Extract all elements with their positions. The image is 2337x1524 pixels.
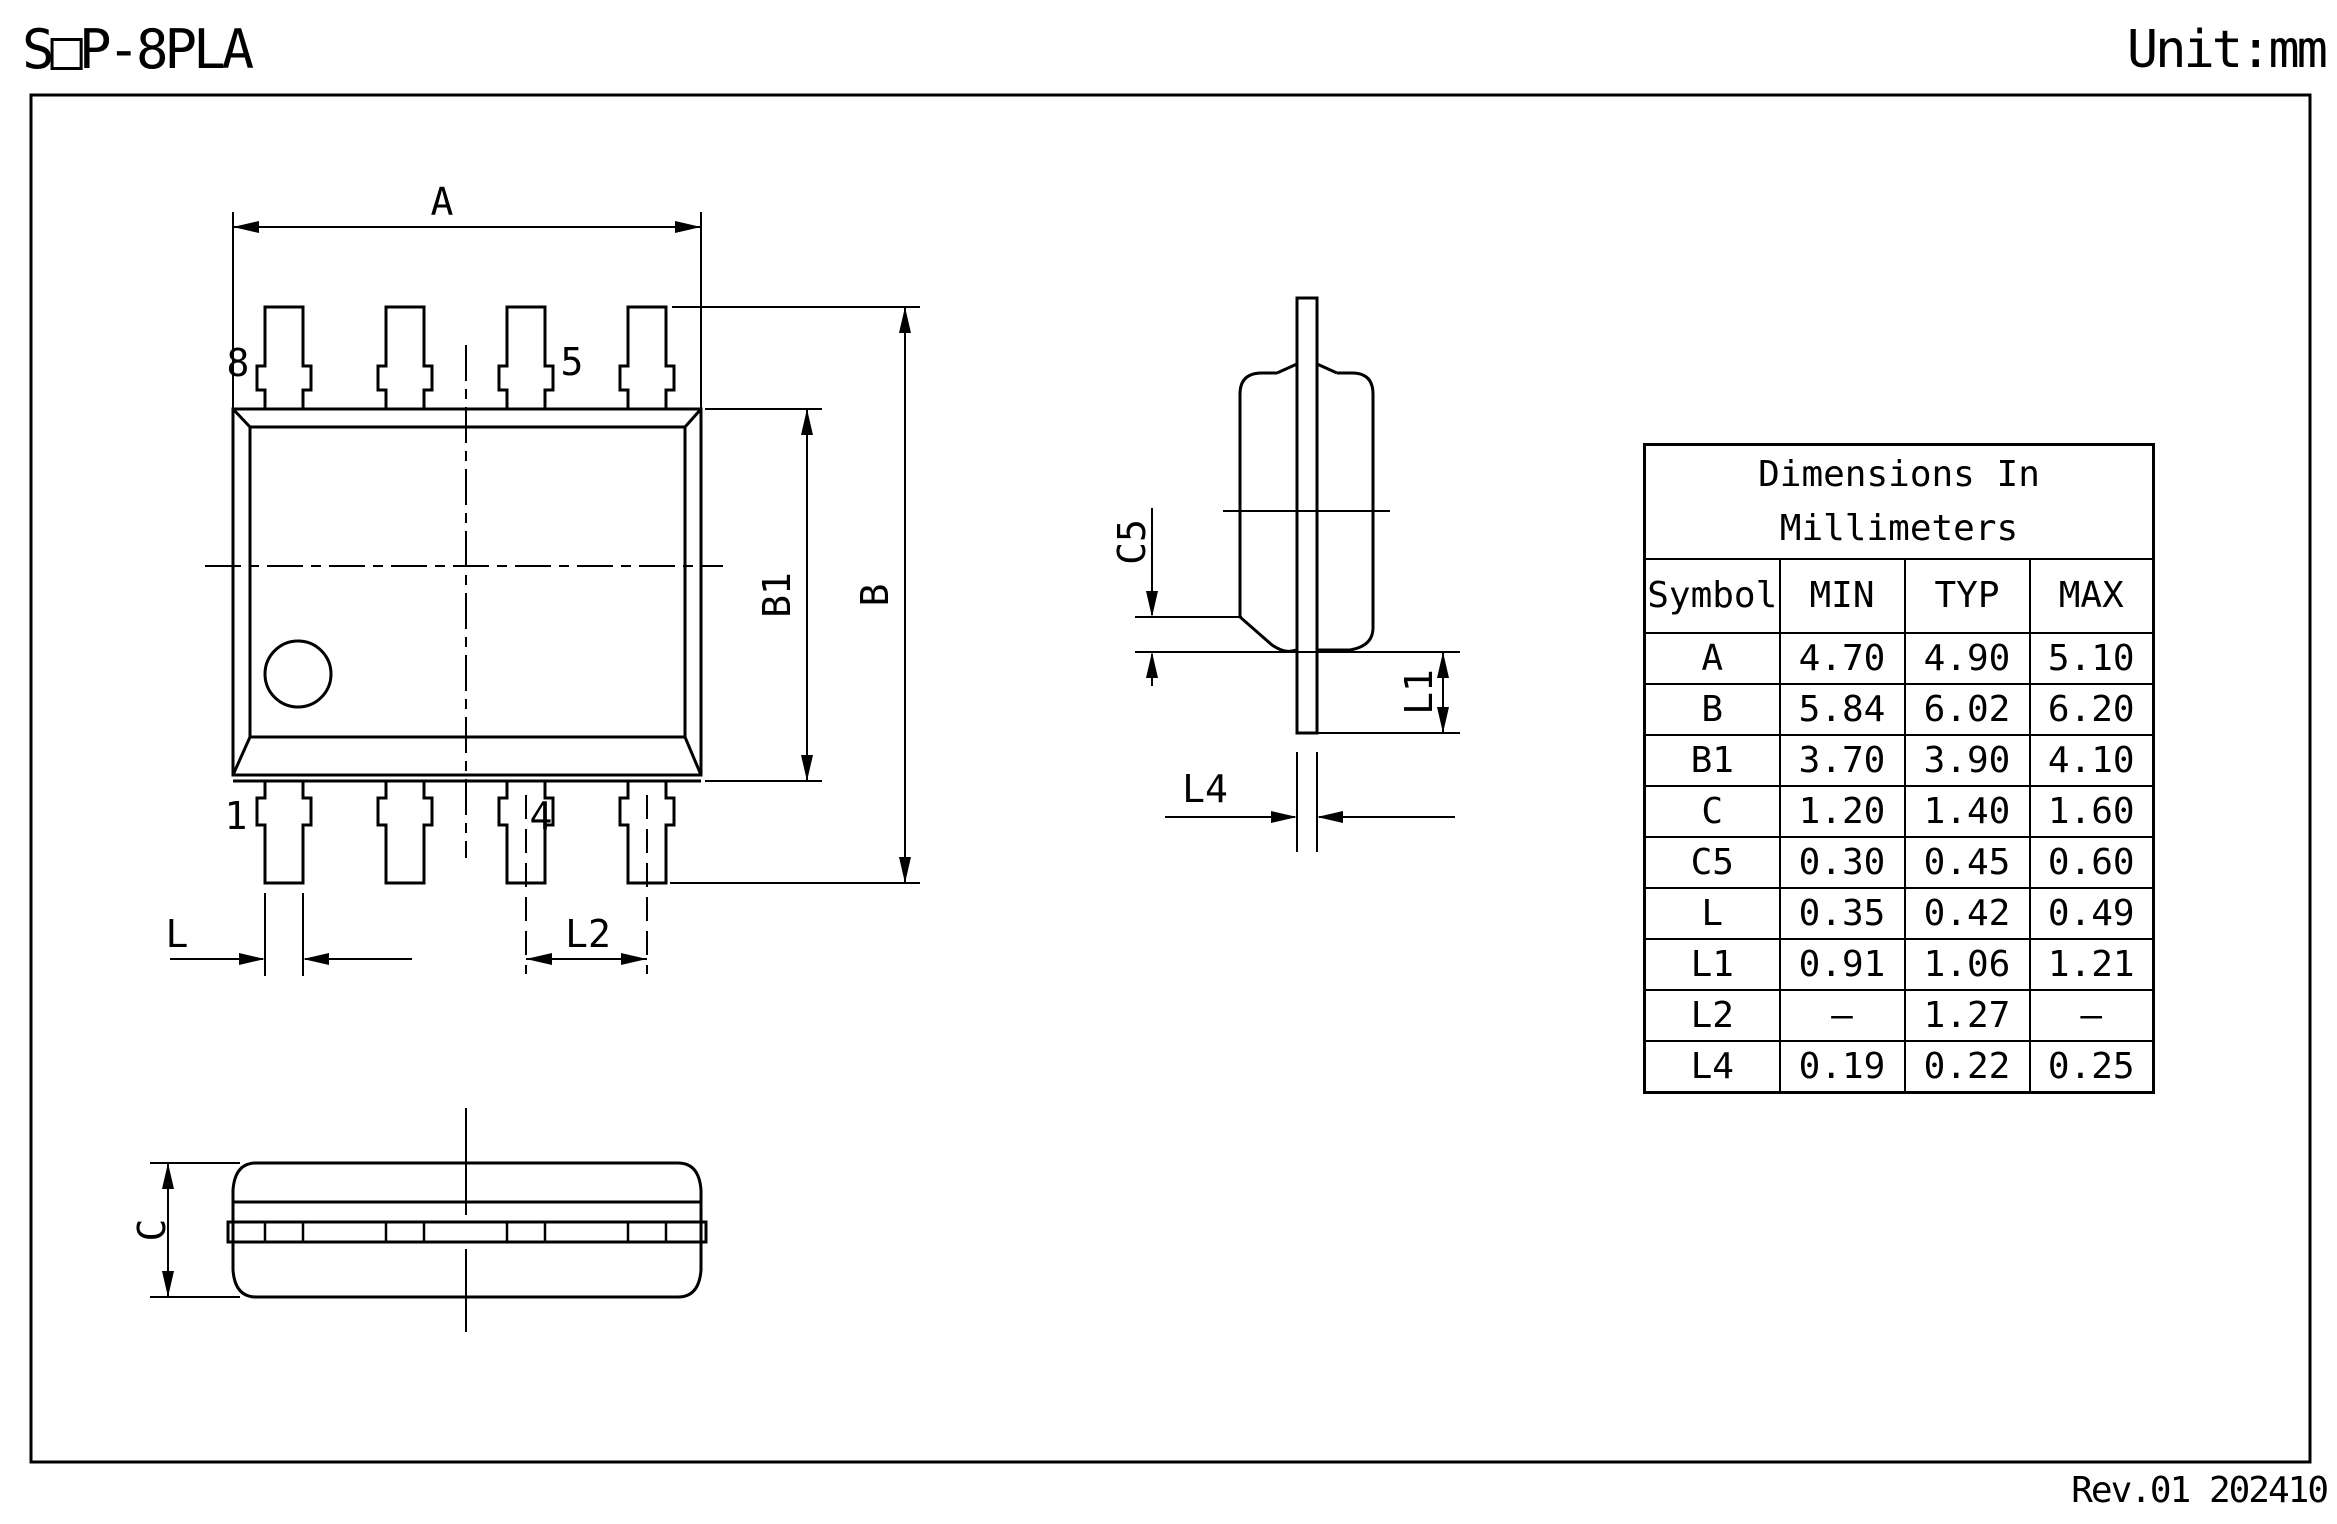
- cell-min: 3.70: [1780, 735, 1905, 786]
- pin-6: [499, 307, 553, 409]
- cell-min: 0.30: [1780, 837, 1905, 888]
- table-row: A 4.70 4.90 5.10: [1645, 633, 2154, 684]
- arrowhead: [675, 221, 701, 233]
- side-body-top-slope-left: [1277, 364, 1297, 373]
- body-chamfer-tl: [233, 409, 250, 427]
- col-header-symbol: Symbol: [1645, 559, 1780, 633]
- cell-max: 0.60: [2030, 837, 2154, 888]
- cell-typ: 4.90: [1905, 633, 2030, 684]
- pin-7: [378, 307, 432, 409]
- dim-label-b1: B1: [755, 572, 799, 618]
- cell-symbol: C5: [1645, 837, 1780, 888]
- arrowhead: [1146, 591, 1158, 617]
- unit-label: Unit:mm: [2127, 20, 2325, 80]
- dimension-arrowheads: [162, 221, 1449, 1297]
- pin-label-5: 5: [561, 340, 584, 384]
- cell-max: –: [2030, 990, 2154, 1041]
- pin-5: [620, 307, 674, 409]
- side-body-top-slope-right: [1317, 364, 1337, 373]
- cell-typ: 0.42: [1905, 888, 2030, 939]
- dim-label-a: A: [431, 180, 454, 224]
- cell-typ: 0.45: [1905, 837, 2030, 888]
- arrowhead: [1146, 652, 1158, 678]
- front-lead-band-dividers: [233, 1222, 701, 1242]
- pin-label-8: 8: [227, 341, 250, 385]
- datasheet-page: A B1 B L L2 C5 L1 L4 C 8 5 1 4 S□P-8PLA …: [0, 0, 2337, 1524]
- dim-label-c: C: [130, 1219, 174, 1242]
- front-lead-band: [228, 1222, 706, 1242]
- pin-8: [257, 307, 311, 409]
- body-chamfer-tr: [685, 409, 701, 427]
- col-header-max: MAX: [2030, 559, 2154, 633]
- cell-max: 0.25: [2030, 1041, 2154, 1093]
- table-row: C 1.20 1.40 1.60: [1645, 786, 2154, 837]
- arrowhead: [1317, 811, 1343, 823]
- cell-min: 0.19: [1780, 1041, 1905, 1093]
- cell-max: 5.10: [2030, 633, 2154, 684]
- arrowhead: [899, 307, 911, 333]
- table-row: L2 – 1.27 –: [1645, 990, 2154, 1041]
- dim-label-l2: L2: [565, 912, 611, 956]
- col-header-min: MIN: [1780, 559, 1905, 633]
- cell-min: 0.91: [1780, 939, 1905, 990]
- revision-label: Rev.01 202410: [2071, 1470, 2327, 1511]
- dim-label-l: L: [166, 912, 189, 956]
- cell-max: 4.10: [2030, 735, 2154, 786]
- pin-label-1: 1: [225, 794, 248, 838]
- dim-label-b: B: [853, 584, 897, 607]
- cell-min: 1.20: [1780, 786, 1905, 837]
- cell-max: 0.49: [2030, 888, 2154, 939]
- cell-symbol: L4: [1645, 1041, 1780, 1093]
- table-row: C5 0.30 0.45 0.60: [1645, 837, 2154, 888]
- arrowhead: [239, 953, 265, 965]
- dim-label-l1: L1: [1397, 669, 1441, 715]
- pin1-indicator-dot: [265, 641, 331, 707]
- dim-label-c5: C5: [1110, 519, 1154, 565]
- arrowhead: [621, 953, 647, 965]
- cell-max: 6.20: [2030, 684, 2154, 735]
- table-row: B1 3.70 3.90 4.10: [1645, 735, 2154, 786]
- cell-min: 5.84: [1780, 684, 1905, 735]
- arrowhead: [526, 953, 552, 965]
- table-title: Dimensions In Millimeters: [1645, 445, 2154, 560]
- table-row: L4 0.19 0.22 0.25: [1645, 1041, 2154, 1093]
- arrowhead: [303, 953, 329, 965]
- table-title-line1: Dimensions In: [1646, 448, 2152, 502]
- table-row: L1 0.91 1.06 1.21: [1645, 939, 2154, 990]
- cell-min: 4.70: [1780, 633, 1905, 684]
- arrowhead: [162, 1163, 174, 1189]
- drawing-labels: A B1 B L L2 C5 L1 L4 C 8 5 1 4: [130, 180, 1441, 1241]
- cell-symbol: A: [1645, 633, 1780, 684]
- cell-typ: 0.22: [1905, 1041, 2030, 1093]
- cell-symbol: B: [1645, 684, 1780, 735]
- pin-label-4: 4: [530, 794, 553, 838]
- side-view: [1240, 298, 1373, 733]
- cell-typ: 1.27: [1905, 990, 2030, 1041]
- cell-typ: 1.40: [1905, 786, 2030, 837]
- cell-typ: 3.90: [1905, 735, 2030, 786]
- cell-min: 0.35: [1780, 888, 1905, 939]
- arrowhead: [1271, 811, 1297, 823]
- dimensions-table: Dimensions In Millimeters Symbol MIN TYP…: [1643, 443, 2155, 1094]
- pin-2: [378, 781, 432, 883]
- lead-profile: [1297, 298, 1317, 733]
- cell-min: –: [1780, 990, 1905, 1041]
- cell-symbol: C: [1645, 786, 1780, 837]
- side-body-left: [1240, 373, 1297, 651]
- table-row: L 0.35 0.42 0.49: [1645, 888, 2154, 939]
- body-top-surface-outline: [250, 427, 685, 737]
- cell-symbol: L1: [1645, 939, 1780, 990]
- pin-1: [257, 781, 311, 883]
- arrowhead: [162, 1271, 174, 1297]
- cell-symbol: L2: [1645, 990, 1780, 1041]
- arrowhead: [801, 755, 813, 781]
- cell-typ: 1.06: [1905, 939, 2030, 990]
- table-row: B 5.84 6.02 6.20: [1645, 684, 2154, 735]
- body-chamfer-bl: [233, 737, 250, 775]
- table-title-line2: Millimeters: [1646, 502, 2152, 556]
- dim-label-l4: L4: [1182, 767, 1228, 811]
- table-header-row: Symbol MIN TYP MAX: [1645, 559, 2154, 633]
- cell-symbol: B1: [1645, 735, 1780, 786]
- col-header-typ: TYP: [1905, 559, 2030, 633]
- body-chamfer-br: [685, 737, 701, 775]
- page-title: S□P-8PLA: [22, 18, 250, 81]
- arrowhead: [801, 409, 813, 435]
- top-view-centerlines: [205, 345, 723, 974]
- cell-typ: 6.02: [1905, 684, 2030, 735]
- cell-symbol: L: [1645, 888, 1780, 939]
- arrowhead: [233, 221, 259, 233]
- cell-max: 1.21: [2030, 939, 2154, 990]
- table-title-row: Dimensions In Millimeters: [1645, 445, 2154, 560]
- cell-max: 1.60: [2030, 786, 2154, 837]
- arrowhead: [899, 857, 911, 883]
